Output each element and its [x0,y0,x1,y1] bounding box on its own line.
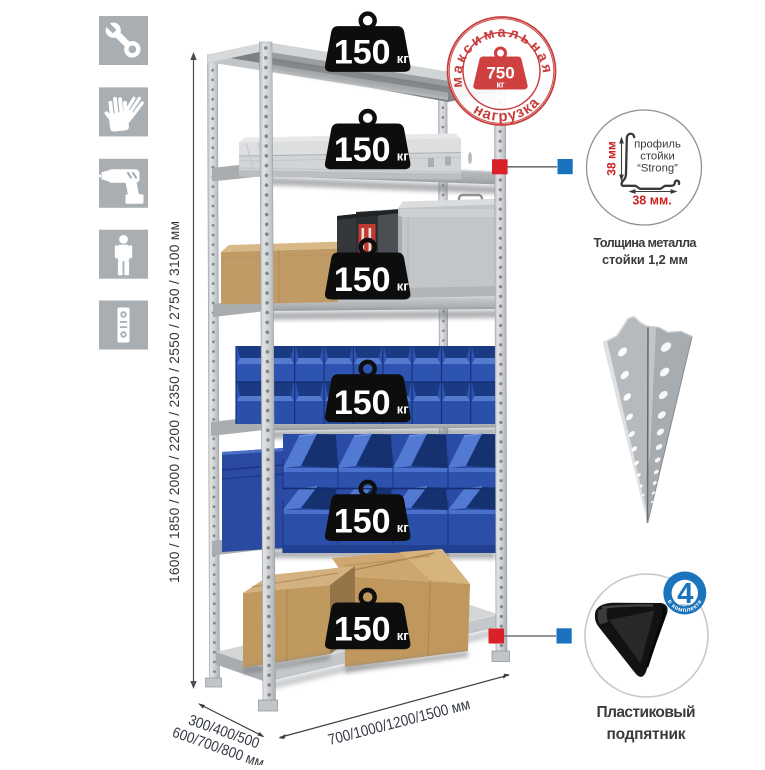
svg-text:кг: кг [397,520,410,535]
svg-text:150: 150 [334,33,391,71]
svg-text:кг: кг [397,628,410,643]
svg-text:стойки: стойки [640,151,675,163]
svg-text:150: 150 [334,384,391,422]
svg-text:38 мм.: 38 мм. [632,194,671,208]
svg-text:стойки 1,2 мм: стойки 1,2 мм [602,252,688,267]
svg-text:Толщина металла: Толщина металла [594,235,698,250]
svg-text:кг: кг [397,401,410,416]
svg-text:кг: кг [496,80,505,90]
svg-text:подпятник: подпятник [607,726,686,743]
svg-text:Пластиковый: Пластиковый [597,704,696,721]
svg-text:кг: кг [397,279,410,294]
svg-text:штуки: штуки [678,603,691,608]
svg-text:150: 150 [334,503,391,541]
svg-text:150: 150 [334,261,391,299]
svg-text:150: 150 [334,611,391,649]
svg-text:“Strong”: “Strong” [637,163,678,175]
svg-text:кг: кг [397,51,410,66]
svg-text:кг: кг [397,148,410,163]
svg-text:150: 150 [334,131,391,169]
svg-text:1600 / 1850 / 2000 / 2200 / 23: 1600 / 1850 / 2000 / 2200 / 2350 / 2550 … [167,221,182,583]
svg-text:38 мм: 38 мм [605,141,619,176]
svg-text:профиль: профиль [634,139,681,151]
